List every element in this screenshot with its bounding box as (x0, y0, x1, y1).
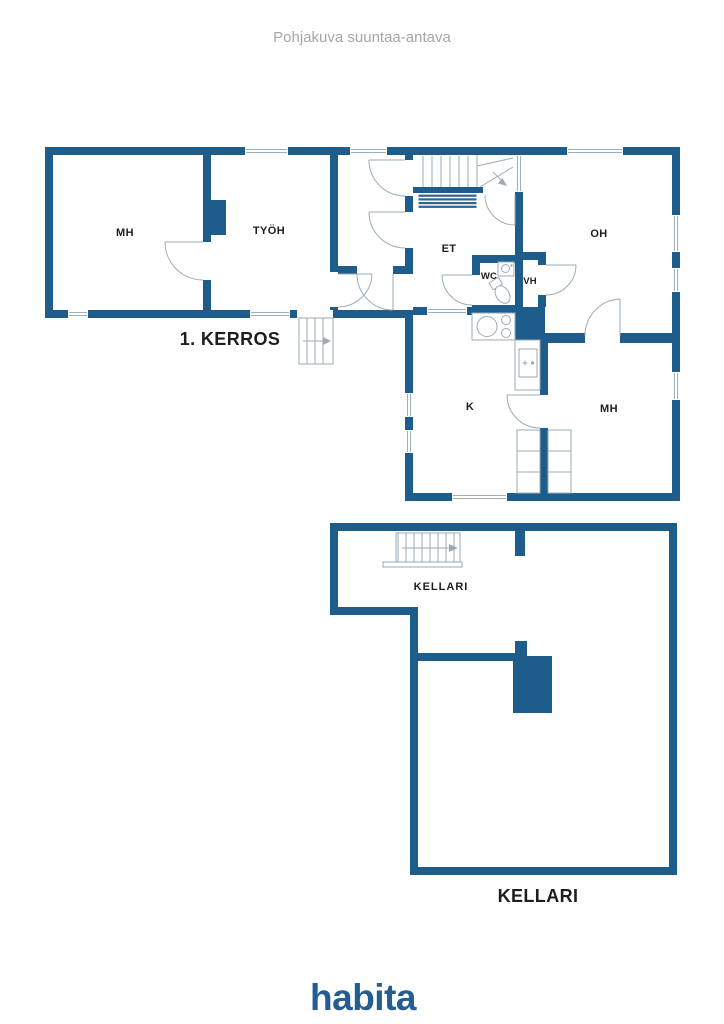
chimney-block-basement (513, 656, 552, 713)
first-floor-plan: MH TYÖH ET WC VH OH K MH 1. KERROS (45, 147, 680, 501)
disclaimer-text: Pohjakuva suuntaa-antava (273, 29, 451, 46)
room-label-mh-right: MH (600, 403, 618, 415)
stair-direction-arrow (498, 178, 507, 186)
basement-stairs-hatch (417, 193, 478, 208)
room-label-tyoh: TYÖH (253, 224, 285, 237)
basement-walls (330, 523, 677, 875)
windows (68, 147, 680, 501)
room-label-et: ET (442, 243, 457, 255)
basement-title: KELLARI (498, 886, 579, 906)
brand-logo: habita (310, 977, 417, 1018)
room-label-vh: VH (523, 276, 537, 287)
room-label-mh-left: MH (116, 227, 134, 239)
basement-plan: KELLARI KELLARI (330, 523, 677, 906)
first-floor-title: 1. KERROS (180, 329, 281, 349)
floorplan-canvas: Pohjakuva suuntaa-antava (0, 0, 724, 1024)
staircase-basement (383, 533, 462, 567)
room-label-k: K (466, 401, 474, 413)
entrance-steps (299, 318, 333, 364)
staircase-first-floor (417, 155, 513, 208)
fridge-icon (519, 349, 537, 377)
room-label-wc: WC (481, 271, 497, 282)
first-floor-walls (45, 147, 680, 501)
basement-stair-room-label: KELLARI (414, 581, 469, 593)
stove-icon (472, 313, 515, 340)
door-swings (165, 160, 620, 428)
wc-fixtures (488, 262, 514, 306)
floorplan-page: Pohjakuva suuntaa-antava (0, 0, 724, 1024)
room-label-oh: OH (590, 228, 607, 240)
